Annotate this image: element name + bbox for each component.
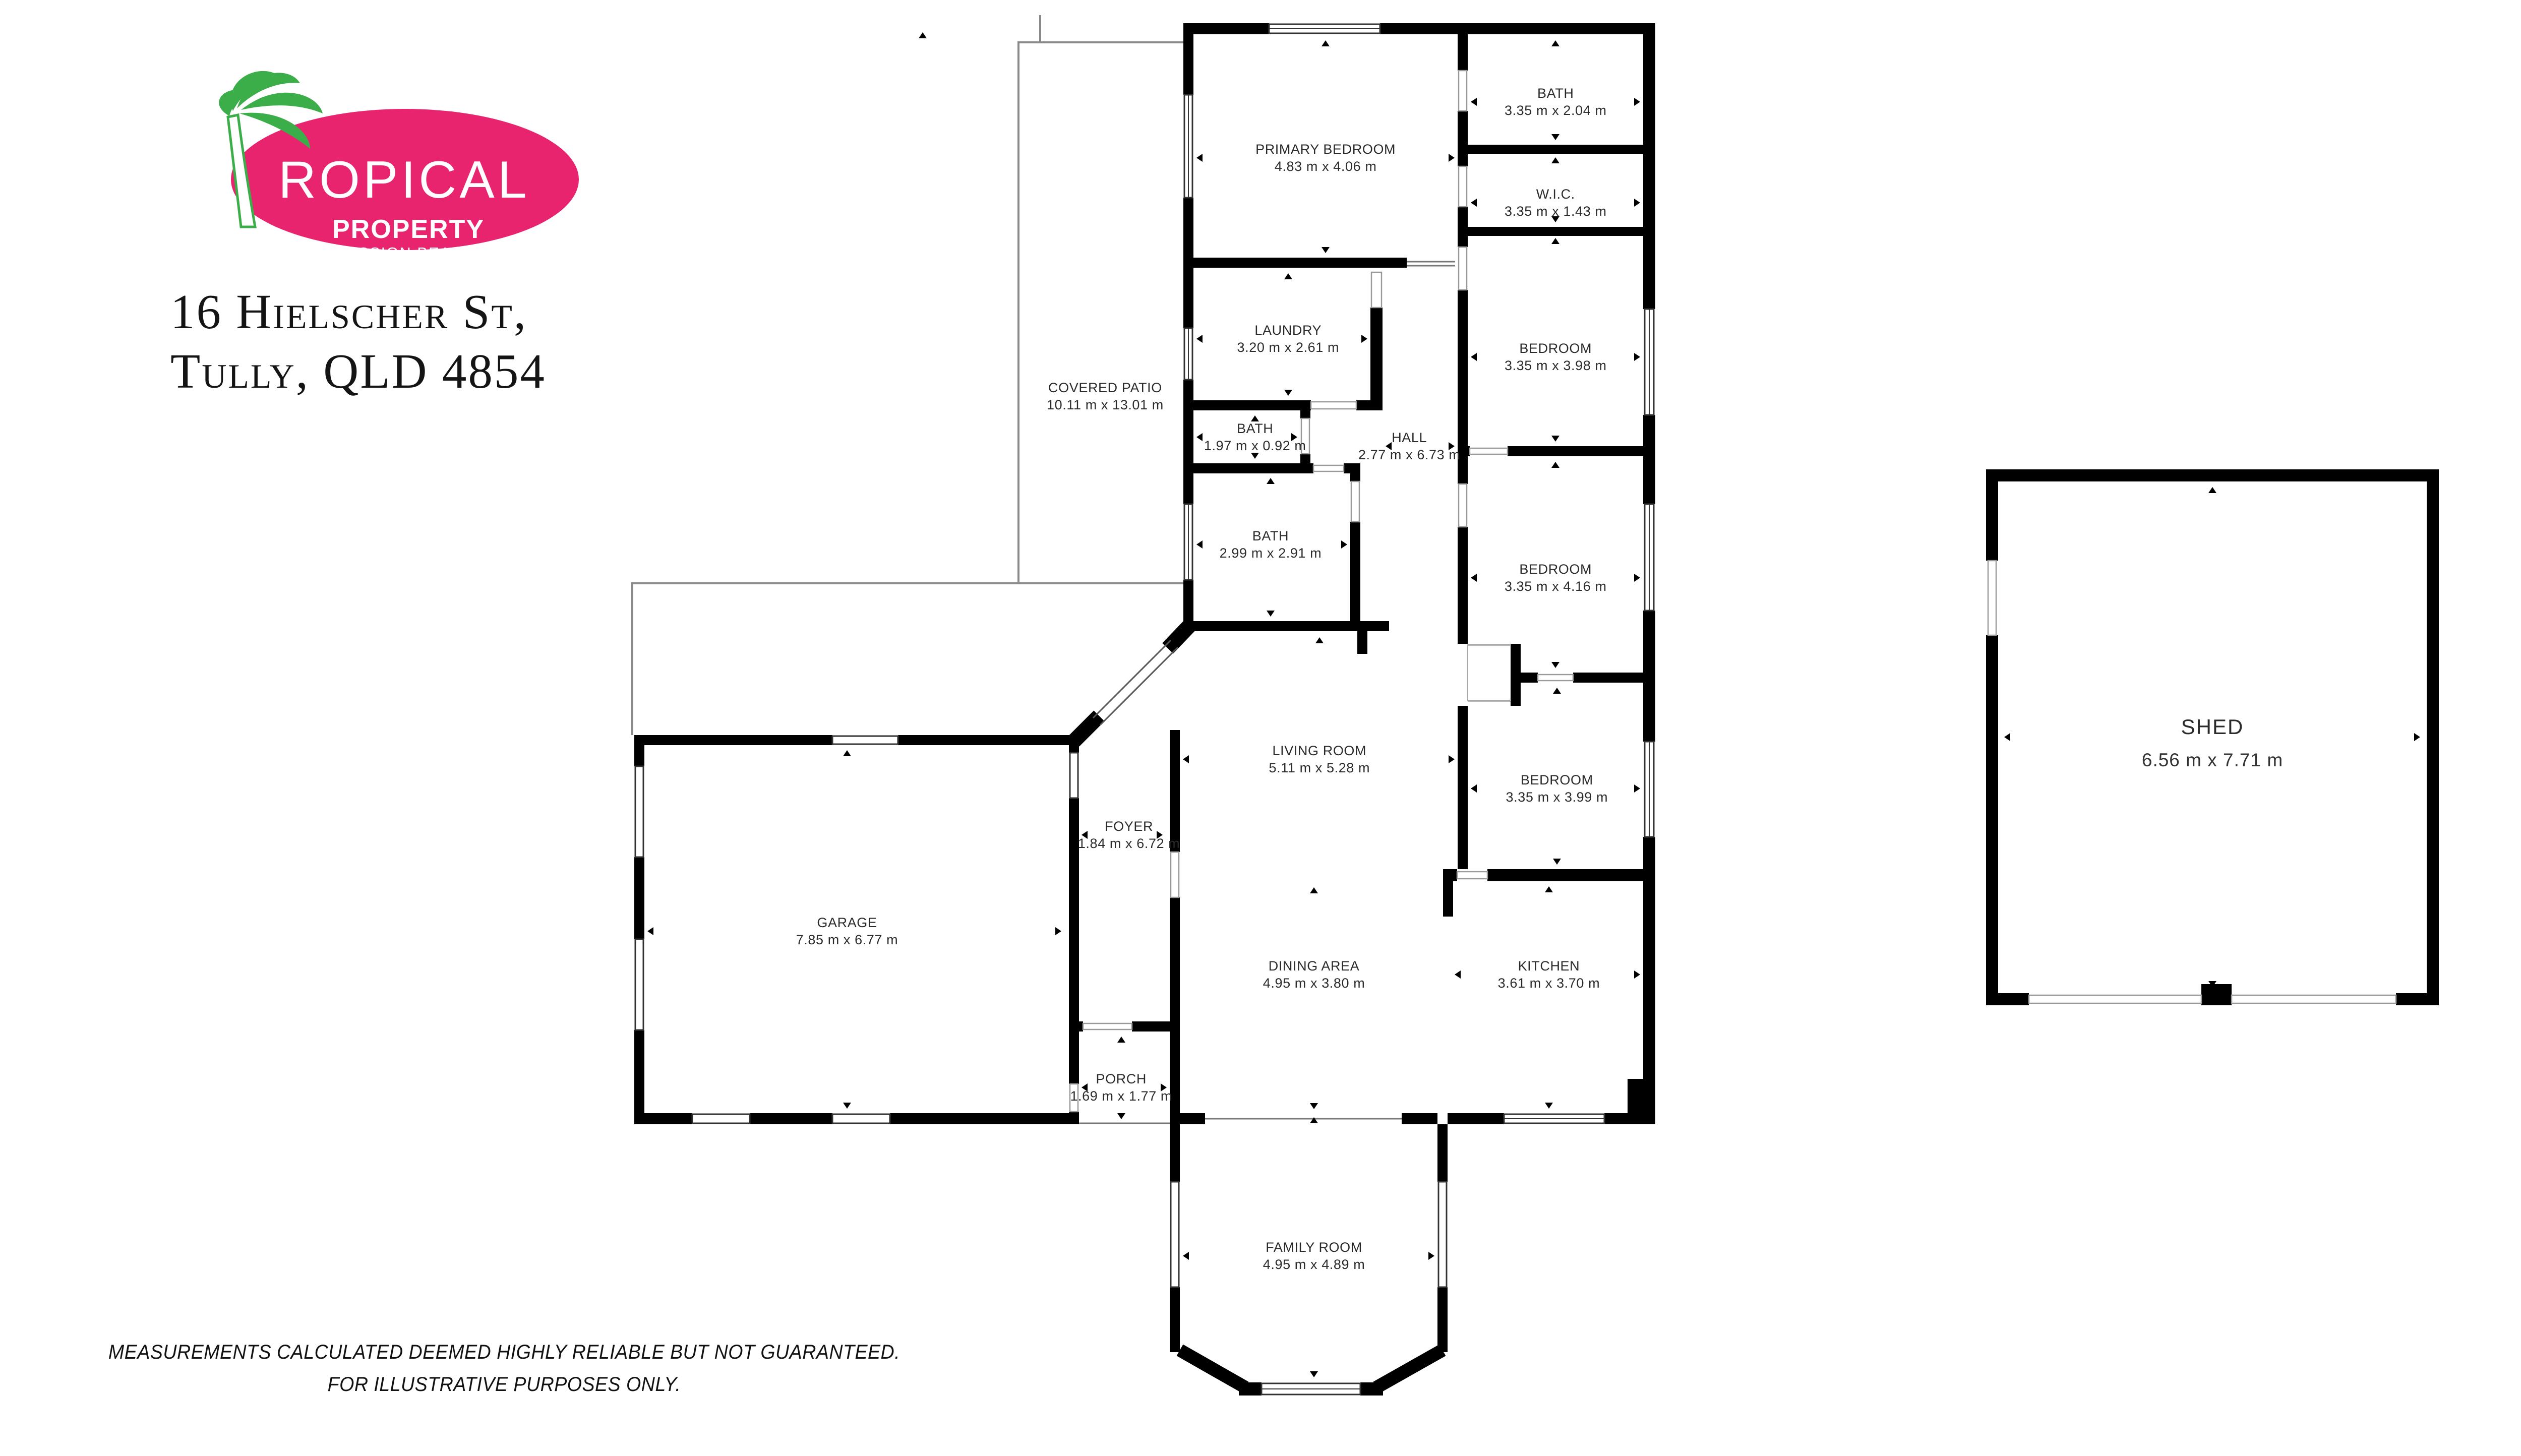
room-label-bath-3: BATH 2.99 m x 2.91 m (1220, 527, 1322, 562)
room-label-foyer: FOYER 1.84 m x 6.72 m (1078, 818, 1180, 852)
room-label-bedroom-3: BEDROOM 3.35 m x 3.99 m (1506, 771, 1608, 806)
room-label-wic: W.I.C. 3.35 m x 1.43 m (1505, 186, 1607, 220)
logo-brand-bottom: MISSION BEACH (339, 244, 476, 262)
walls (634, 23, 2439, 1396)
room-label-family-room: FAMILY ROOM 4.95 m x 4.89 m (1263, 1239, 1365, 1273)
address-line-1: 16 Hielscher St, (170, 282, 546, 342)
property-address: 16 Hielscher St, Tully, QLD 4854 (170, 282, 546, 401)
diagonal-walls (1074, 624, 1443, 1387)
room-label-bath-ensuite: BATH 3.35 m x 2.04 m (1505, 85, 1607, 119)
room-label-dining-area: DINING AREA 4.95 m x 3.80 m (1263, 957, 1365, 992)
disclaimer-line-2: FOR ILLUSTRATIVE PURPOSES ONLY. (108, 1368, 900, 1401)
room-label-bath-2: BATH 1.97 m x 0.92 m (1204, 420, 1306, 454)
room-label-living-room: LIVING ROOM 5.11 m x 5.28 m (1269, 742, 1370, 776)
logo-brand-top: ROPICAL (278, 151, 530, 209)
room-label-covered-patio: COVERED PATIO 10.11 m x 13.01 m (1047, 379, 1164, 413)
room-label-bedroom-2: BEDROOM 3.35 m x 4.16 m (1505, 561, 1607, 595)
room-label-laundry: LAUNDRY 3.20 m x 2.61 m (1237, 322, 1340, 356)
room-label-garage: GARAGE 7.85 m x 6.77 m (796, 914, 898, 948)
address-line-2: Tully, QLD 4854 (170, 342, 546, 401)
disclaimer: MEASUREMENTS CALCULATED DEEMED HIGHLY RE… (108, 1336, 900, 1401)
room-label-shed: SHED 6.56 m x 7.71 m (2142, 717, 2283, 770)
room-label-primary-bedroom: PRIMARY BEDROOM 4.83 m x 4.06 m (1255, 141, 1396, 175)
disclaimer-line-1: MEASUREMENTS CALCULATED DEEMED HIGHLY RE… (108, 1336, 900, 1368)
agency-logo: ROPICAL PROPERTY MISSION BEACH (202, 60, 615, 282)
logo-brand-mid: PROPERTY (332, 215, 485, 244)
room-label-porch: PORCH 1.69 m x 1.77 m (1070, 1070, 1172, 1105)
door-openings (1070, 71, 2396, 1112)
room-label-hall: HALL 2.77 m x 6.73 m (1358, 429, 1461, 463)
room-label-kitchen: KITCHEN 3.61 m x 3.70 m (1498, 957, 1600, 992)
patio-outline (632, 15, 1183, 735)
floor-plan-page: ROPICAL PROPERTY MISSION BEACH 16 Hielsc… (0, 0, 2521, 1456)
room-label-bedroom-1: BEDROOM 3.35 m x 3.98 m (1505, 340, 1607, 374)
